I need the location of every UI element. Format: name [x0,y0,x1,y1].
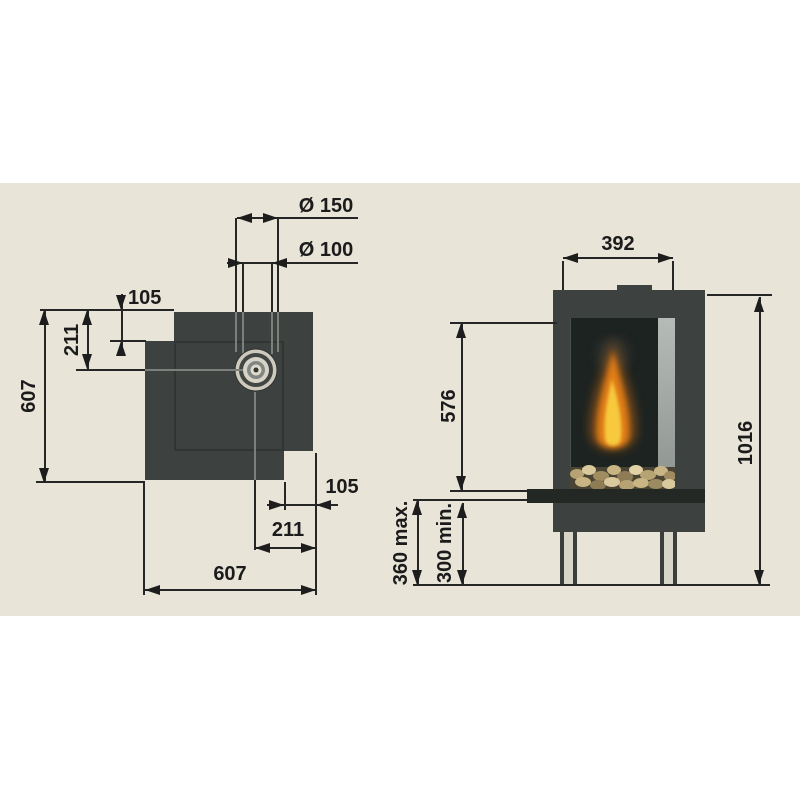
extension-line-width-right [672,261,674,290]
dim-label-notch-width: 105 [318,477,366,497]
dim-label-base-min: 300 min. [435,498,455,588]
extension-line-flue-center-on-body [145,369,243,371]
dim-line-flue-outer [237,217,358,219]
fireplace-leg-left [560,532,577,585]
top-view-corner-cut-bottomright [284,451,313,480]
extension-line-right-edge [315,453,317,595]
arrow-up-icon [116,341,126,356]
dim-line-overall-height [759,297,761,585]
arrow-right-icon [301,585,316,595]
arrow-left-icon [255,543,270,553]
arrow-up-icon [412,500,422,515]
flue-pipe-inner-left-line [242,263,244,312]
arrow-left-icon [145,585,160,595]
extension-line-width-left [562,261,564,290]
dim-label-front-width: 392 [595,234,641,254]
dim-line-depth-607 [44,310,46,483]
dim-label-flue-outer-diameter: Ø 150 [293,196,359,216]
arrow-up-icon [457,503,467,518]
dim-label-step-depth: 105 [128,288,172,308]
arrow-down-icon [82,354,92,369]
arrow-down-icon [39,468,49,483]
dim-line-glass-height [461,323,463,491]
arrow-up-icon [754,297,764,312]
extension-line-body-top-right [707,294,772,296]
technical-drawing-canvas: 105 211 607 Ø 150 Ø 100 105 211 [0,0,800,800]
extension-line-glass-top [450,322,557,324]
dim-label-flue-inner-diameter: Ø 100 [293,240,359,260]
dim-label-base-max: 360 max. [391,498,411,588]
dim-label-flue-offset-right: 211 [266,520,310,540]
dim-line-width-607 [145,589,316,591]
dim-label-overall-depth: 607 [19,371,39,421]
extension-line-top [40,309,174,311]
extension-line-flue-center-down-on-body [254,392,256,480]
fireplace-leg-right [660,532,677,585]
extension-line-bench-bottom [413,499,528,501]
arrow-left-icon [563,253,578,263]
arrow-right-icon [228,258,243,268]
dim-label-flue-offset-top: 211 [62,315,82,365]
arrow-right-icon [301,543,316,553]
dim-line-front-width [563,257,673,259]
arrow-down-icon [116,295,126,310]
arrow-up-icon [39,310,49,325]
flame-icon [582,333,644,467]
dim-label-overall-height: 1016 [736,413,756,473]
dim-label-overall-width: 607 [205,564,255,584]
arrow-down-icon [456,476,466,491]
dim-line-flue-inner [227,262,358,264]
dim-label-glass-height: 576 [439,381,459,431]
extension-line-flue-center-down [254,480,256,550]
extension-line-bench-top [450,490,528,492]
extension-line-body-left-down [143,483,145,595]
top-view-corner-cut-topleft [145,312,174,341]
extension-line-bottom-left [36,481,145,483]
arrow-right-icon [658,253,673,263]
arrow-down-icon [457,570,467,585]
arrow-left-icon [316,500,331,510]
arrow-left-icon [272,258,287,268]
ground-line [413,584,770,586]
arrow-up-icon [456,323,466,338]
hearth-bench [527,489,705,503]
arrow-right-icon [269,500,284,510]
flue-pipe-inner-right-line [271,263,273,312]
arrow-left-icon [237,213,252,223]
pebble-bed [570,458,675,490]
arrow-down-icon [412,570,422,585]
arrow-right-icon [263,213,278,223]
arrow-up-icon [82,310,92,325]
arrow-down-icon [754,570,764,585]
